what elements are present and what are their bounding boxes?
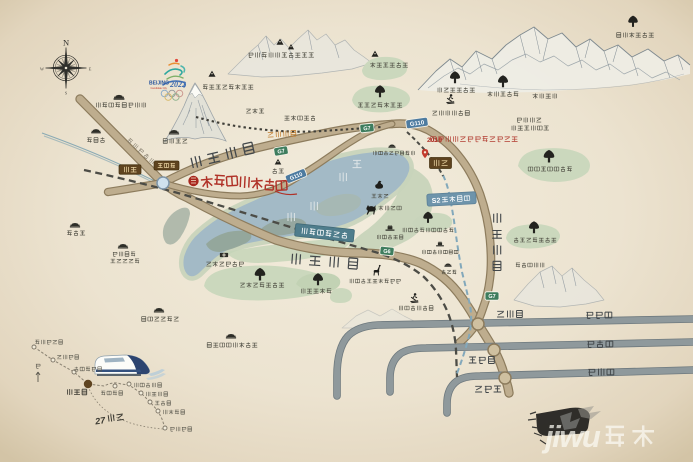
svg-text:2019: 2019 bbox=[427, 137, 442, 144]
svg-text:G7: G7 bbox=[277, 148, 285, 155]
svg-text:Candidate City: Candidate City bbox=[151, 87, 168, 90]
svg-text:jiwu: jiwu bbox=[541, 419, 601, 454]
svg-text:N: N bbox=[63, 38, 69, 48]
svg-text:BEIJING: BEIJING bbox=[149, 81, 169, 87]
svg-text:2022: 2022 bbox=[169, 80, 186, 89]
svg-text:G7: G7 bbox=[488, 294, 495, 300]
svg-text:S2: S2 bbox=[432, 198, 441, 205]
svg-text:G7: G7 bbox=[363, 126, 371, 133]
svg-text:G6: G6 bbox=[383, 249, 391, 256]
svg-text:E: E bbox=[89, 66, 92, 71]
